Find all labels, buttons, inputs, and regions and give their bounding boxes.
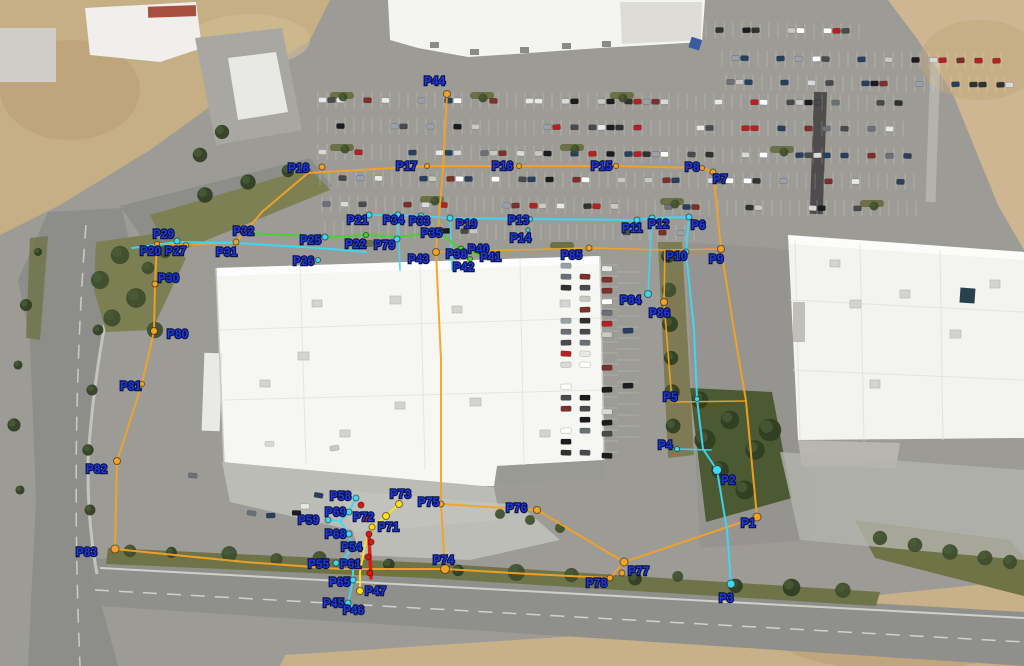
survey-overlay: P44P18P17P16P15P8P7P9P21P34P33P19P13P14P…: [0, 0, 1024, 666]
survey-marker-red: [365, 554, 371, 560]
point-marker[interactable]: [614, 164, 619, 169]
point-label: P29: [153, 229, 174, 241]
point-label: P17: [396, 161, 417, 173]
point-label: P7: [713, 174, 728, 186]
point-label: P80: [167, 329, 188, 341]
point-label: P6: [691, 220, 706, 232]
survey-point-P61[interactable]: P61: [340, 559, 362, 571]
survey-point-P47[interactable]: P47: [357, 586, 387, 598]
point-label: P41: [480, 252, 502, 264]
point-label: P26: [293, 256, 314, 268]
point-label: P38: [446, 249, 468, 261]
point-label: P54: [341, 542, 363, 554]
survey-point-P74[interactable]: P74: [433, 555, 455, 574]
survey-point-P14[interactable]: P14: [510, 228, 532, 245]
point-label: P82: [86, 464, 107, 476]
point-marker[interactable]: [586, 245, 592, 251]
point-marker[interactable]: [695, 397, 700, 402]
map-viewport: P44P18P17P16P15P8P7P9P21P34P33P19P13P14P…: [0, 0, 1024, 666]
survey-point-P38[interactable]: P38: [446, 246, 468, 261]
point-label: P73: [390, 489, 411, 501]
point-marker[interactable]: [357, 588, 364, 595]
point-marker[interactable]: [645, 291, 652, 298]
point-label: P84: [620, 295, 642, 307]
point-label: P59: [298, 515, 319, 527]
survey-point-P68[interactable]: P68: [325, 529, 352, 541]
survey-line-cyan-p4-tick: [677, 449, 711, 450]
survey-point-P76[interactable]: P76: [506, 503, 541, 515]
point-label: P3: [719, 593, 734, 605]
point-marker[interactable]: [517, 164, 522, 169]
point-label: P18: [288, 163, 310, 175]
survey-point-P46[interactable]: P46: [343, 605, 364, 617]
point-label: P27: [165, 246, 186, 258]
survey-point-P81[interactable]: P81: [120, 381, 145, 393]
point-label: P71: [378, 522, 400, 534]
point-label: P74: [433, 555, 455, 567]
point-marker[interactable]: [713, 466, 722, 475]
survey-point-P33[interactable]: P33: [409, 213, 430, 228]
point-label: P13: [508, 215, 529, 227]
survey-point-P26[interactable]: P26: [293, 256, 321, 268]
survey-line-boundary-left: [115, 242, 236, 549]
point-marker[interactable]: [383, 513, 390, 520]
survey-marker-red: [367, 570, 373, 576]
point-marker[interactable]: [151, 328, 158, 335]
point-marker[interactable]: [174, 238, 180, 244]
point-marker[interactable]: [353, 495, 359, 501]
survey-line-cyan-drop-p19: [450, 218, 452, 270]
survey-point-P8[interactable]: P8: [685, 162, 705, 174]
point-label: P12: [648, 219, 669, 231]
point-label: P58: [330, 491, 352, 503]
point-marker[interactable]: [114, 458, 121, 465]
point-label: P81: [120, 381, 142, 393]
point-label: P2: [721, 475, 736, 487]
point-marker[interactable]: [364, 233, 369, 238]
survey-point-P86[interactable]: P86: [649, 299, 670, 321]
survey-point-P44[interactable]: P44: [424, 76, 451, 98]
point-label: P21: [347, 215, 369, 227]
point-label: P45: [323, 598, 345, 610]
point-label: P20: [140, 246, 161, 258]
point-label: P43: [408, 254, 429, 266]
survey-point-P43[interactable]: P43: [408, 249, 440, 267]
survey-point-P21[interactable]: P21: [347, 212, 372, 227]
survey-point-P32[interactable]: P32: [233, 226, 254, 238]
survey-point-P3[interactable]: P3: [719, 580, 735, 605]
point-label: P31: [216, 247, 238, 259]
point-label: P5: [663, 392, 678, 404]
point-marker[interactable]: [700, 166, 705, 171]
point-label: P25: [300, 235, 322, 247]
point-marker[interactable]: [661, 299, 668, 306]
survey-point-P13[interactable]: P13: [508, 215, 533, 227]
point-label: P86: [649, 308, 670, 320]
point-marker[interactable]: [111, 545, 119, 553]
point-label: P8: [685, 162, 700, 174]
point-label: P77: [628, 566, 649, 578]
survey-point-P78[interactable]: P78: [586, 575, 613, 590]
point-marker[interactable]: [526, 228, 530, 232]
survey-point-P58[interactable]: P58: [330, 491, 359, 503]
point-label: P4: [658, 440, 673, 452]
point-marker[interactable]: [322, 234, 328, 240]
survey-point-P83[interactable]: P83: [76, 545, 119, 559]
point-marker[interactable]: [396, 501, 403, 508]
survey-line-landscape-diagonal: [441, 504, 624, 562]
point-marker[interactable]: [444, 91, 451, 98]
point-label: P34: [383, 215, 405, 227]
survey-point-P82[interactable]: P82: [86, 458, 121, 477]
point-marker[interactable]: [333, 560, 339, 566]
survey-point-P1[interactable]: P1: [741, 513, 761, 530]
point-label: P79: [374, 240, 395, 252]
point-label: P32: [233, 226, 254, 238]
point-label: P19: [456, 219, 477, 231]
survey-point-P15[interactable]: P15: [591, 161, 619, 173]
survey-point-P34[interactable]: P34: [383, 212, 405, 227]
point-label: P35: [421, 228, 443, 240]
survey-line-boundary-right: [713, 172, 757, 517]
point-marker[interactable]: [534, 507, 541, 514]
point-label: P78: [586, 578, 608, 590]
survey-point-P20[interactable]: P20: [140, 242, 161, 259]
point-label: P65: [329, 577, 351, 589]
point-label: P15: [591, 161, 613, 173]
survey-point-P25[interactable]: P25: [300, 234, 328, 247]
point-label: P47: [365, 586, 386, 598]
point-marker[interactable]: [346, 531, 352, 537]
survey-marker-red: [366, 531, 372, 537]
point-marker[interactable]: [468, 257, 473, 262]
survey-point-P84[interactable]: P84: [620, 291, 652, 308]
point-marker[interactable]: [675, 447, 680, 452]
point-marker[interactable]: [325, 517, 331, 523]
point-marker[interactable]: [727, 580, 735, 588]
point-marker[interactable]: [718, 246, 725, 253]
point-marker[interactable]: [433, 249, 440, 256]
survey-point-P4[interactable]: P4: [658, 440, 680, 452]
point-label: P68: [325, 529, 347, 541]
survey-point-P16[interactable]: P16: [492, 161, 522, 173]
survey-point-P73[interactable]: P73: [390, 489, 411, 508]
point-label: P1: [741, 518, 756, 530]
point-label: P30: [158, 273, 179, 285]
survey-point-P54[interactable]: P54: [341, 542, 363, 554]
survey-point-P17[interactable]: P17: [396, 161, 430, 173]
point-label: P42: [453, 262, 474, 274]
point-label: P61: [340, 559, 362, 571]
survey-point-P41[interactable]: P41: [480, 252, 502, 264]
point-marker[interactable]: [425, 164, 430, 169]
point-label: P33: [409, 216, 430, 228]
point-label: P55: [308, 559, 330, 571]
point-label: P44: [424, 76, 446, 88]
survey-point-P2[interactable]: P2: [713, 466, 736, 488]
survey-point-P7[interactable]: P7: [710, 169, 728, 186]
point-label: P72: [353, 512, 374, 524]
point-marker[interactable]: [346, 509, 352, 515]
point-label: P14: [510, 233, 532, 245]
point-label: P10: [666, 251, 687, 263]
point-marker[interactable]: [316, 258, 321, 263]
point-marker[interactable]: [350, 577, 356, 583]
survey-point-P80[interactable]: P80: [151, 328, 189, 342]
survey-point-P35[interactable]: P35: [421, 228, 443, 240]
point-marker[interactable]: [447, 215, 453, 221]
point-marker[interactable]: [620, 558, 628, 566]
survey-marker-orange: [619, 570, 625, 576]
point-label: P9: [709, 254, 724, 266]
survey-line-boundary-bottom: [115, 517, 757, 578]
survey-marker-red: [368, 539, 374, 545]
point-label: P16: [492, 161, 513, 173]
point-marker[interactable]: [369, 524, 375, 530]
point-label: P46: [343, 605, 364, 617]
point-label: P75: [418, 497, 440, 509]
point-marker[interactable]: [233, 239, 239, 245]
point-marker[interactable]: [319, 164, 325, 170]
survey-point-P79[interactable]: P79: [374, 236, 400, 252]
point-label: P76: [506, 503, 527, 515]
point-label: P83: [76, 547, 97, 559]
survey-point-P10[interactable]: P10: [666, 249, 689, 263]
point-marker[interactable]: [607, 575, 613, 581]
survey-marker-red: [358, 502, 364, 508]
point-label: P22: [345, 239, 366, 251]
point-label: P85: [561, 250, 583, 262]
point-label: P11: [622, 223, 643, 235]
